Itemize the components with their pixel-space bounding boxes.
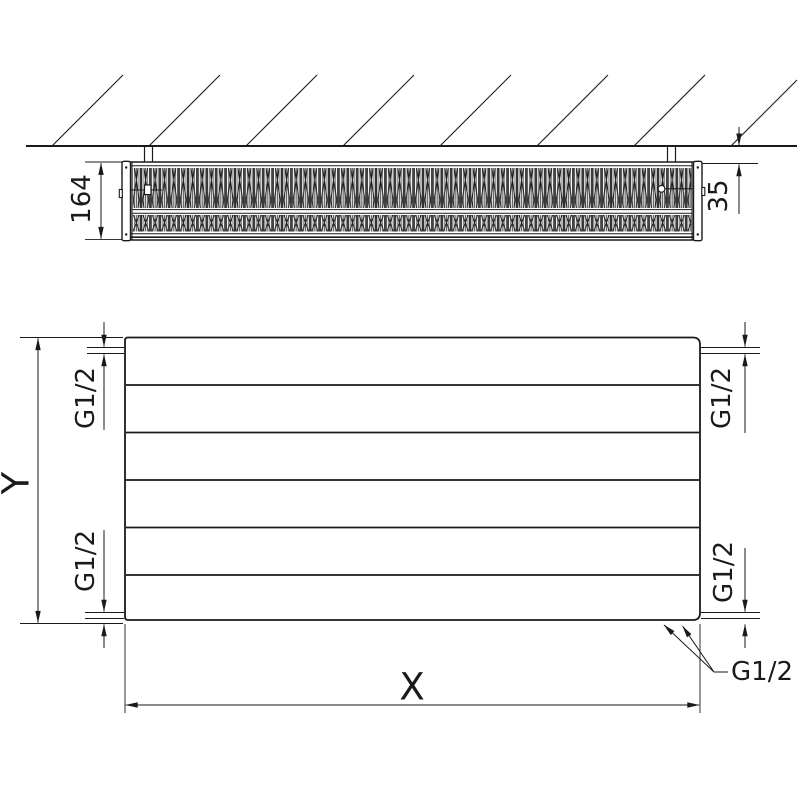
label-width-x: X bbox=[399, 666, 424, 709]
hatch-line bbox=[149, 75, 220, 146]
top-section-view: 164 35 bbox=[26, 75, 797, 241]
thread-dim-bottom-right: G1/2 bbox=[709, 541, 745, 648]
cap-screw bbox=[697, 166, 699, 168]
thread-dim-bottom-left: G1/2 bbox=[71, 530, 104, 648]
cap-screw bbox=[125, 166, 127, 168]
radiator-section-body bbox=[119, 161, 705, 240]
hatch-line bbox=[440, 75, 511, 146]
dimension-height-y: Y bbox=[0, 338, 123, 624]
connection-stub-top-right bbox=[701, 348, 760, 354]
mounting-bracket-left bbox=[145, 147, 153, 162]
thread-label-bottom-left: G1/2 bbox=[71, 530, 101, 592]
hatch-line bbox=[52, 75, 123, 146]
dim-label-depth: 164 bbox=[67, 174, 97, 224]
leader-arrow bbox=[664, 625, 714, 672]
mounting-bracket-right bbox=[668, 147, 676, 162]
wall-hatching bbox=[52, 75, 797, 146]
connection-stub-bottom-right bbox=[701, 613, 760, 619]
drawing-canvas: 164 35 bbox=[0, 0, 800, 800]
thread-dim-top-left: G1/2 bbox=[71, 322, 104, 430]
radiator-panel bbox=[125, 338, 700, 621]
cap-screw bbox=[697, 233, 699, 235]
port-plug-left bbox=[145, 185, 152, 195]
hatch-line bbox=[343, 75, 414, 146]
dimension-depth-164: 164 bbox=[67, 162, 122, 240]
radiator-technical-drawing: 164 35 bbox=[0, 0, 800, 800]
hatch-line bbox=[731, 80, 797, 146]
hatch-line bbox=[537, 75, 608, 146]
thread-label-bottom-connections: G1/2 bbox=[731, 657, 793, 687]
hatch-line bbox=[246, 75, 317, 146]
cap-screw bbox=[125, 233, 127, 235]
side-cap-right bbox=[694, 161, 703, 240]
thread-label-bottom-right: G1/2 bbox=[709, 541, 739, 603]
connection-stub-bottom-left bbox=[85, 613, 124, 619]
connection-stub-top-left bbox=[87, 348, 124, 354]
label-height-y: Y bbox=[0, 471, 38, 495]
thread-label-top-right: G1/2 bbox=[707, 367, 737, 429]
port-vent-right bbox=[658, 185, 665, 192]
dimension-width-x: X bbox=[125, 624, 700, 713]
thread-label-top-left: G1/2 bbox=[71, 367, 101, 429]
dimension-wall-gap-35: 35 bbox=[702, 127, 758, 214]
leader-arrow bbox=[683, 626, 715, 672]
bottom-connections-leader: G1/2 bbox=[664, 625, 793, 687]
front-view: G1/2 G1/2 G1/2 G1/2 Y X bbox=[0, 322, 793, 713]
convector-fins-row-lower bbox=[133, 215, 691, 232]
cap-lug-left bbox=[119, 190, 122, 198]
side-cap-left bbox=[122, 161, 131, 240]
hatch-line bbox=[634, 75, 705, 146]
convector-fins-row-upper bbox=[133, 168, 691, 208]
thread-dim-top-right: G1/2 bbox=[707, 322, 745, 433]
dim-label-wall-gap: 35 bbox=[704, 179, 734, 212]
